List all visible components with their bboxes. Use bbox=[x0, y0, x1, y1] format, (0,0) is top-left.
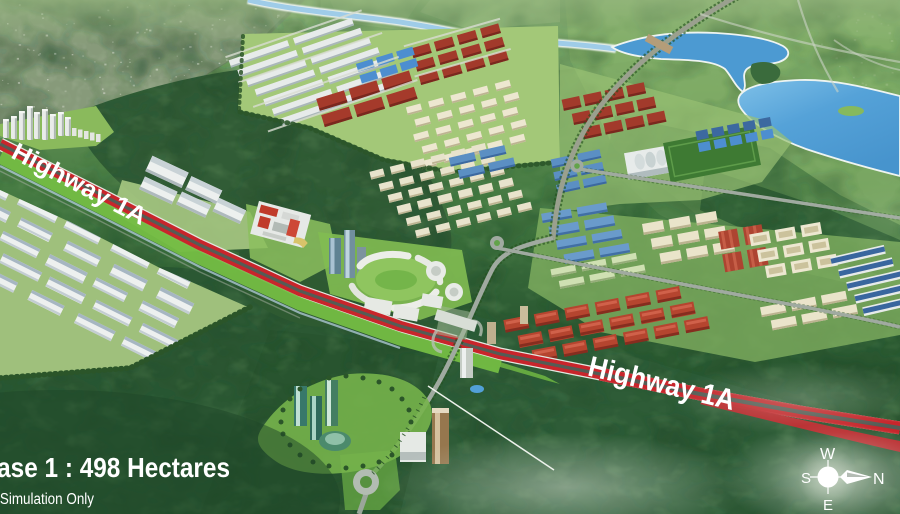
svg-text:N: N bbox=[873, 471, 885, 488]
svg-text:S: S bbox=[801, 470, 811, 487]
svg-text:Phase 1 : 498 Hectares: Phase 1 : 498 Hectares bbox=[0, 452, 230, 483]
svg-text:For Simulation Only: For Simulation Only bbox=[0, 491, 94, 508]
svg-text:E: E bbox=[823, 497, 833, 514]
svg-text:W: W bbox=[820, 446, 836, 463]
